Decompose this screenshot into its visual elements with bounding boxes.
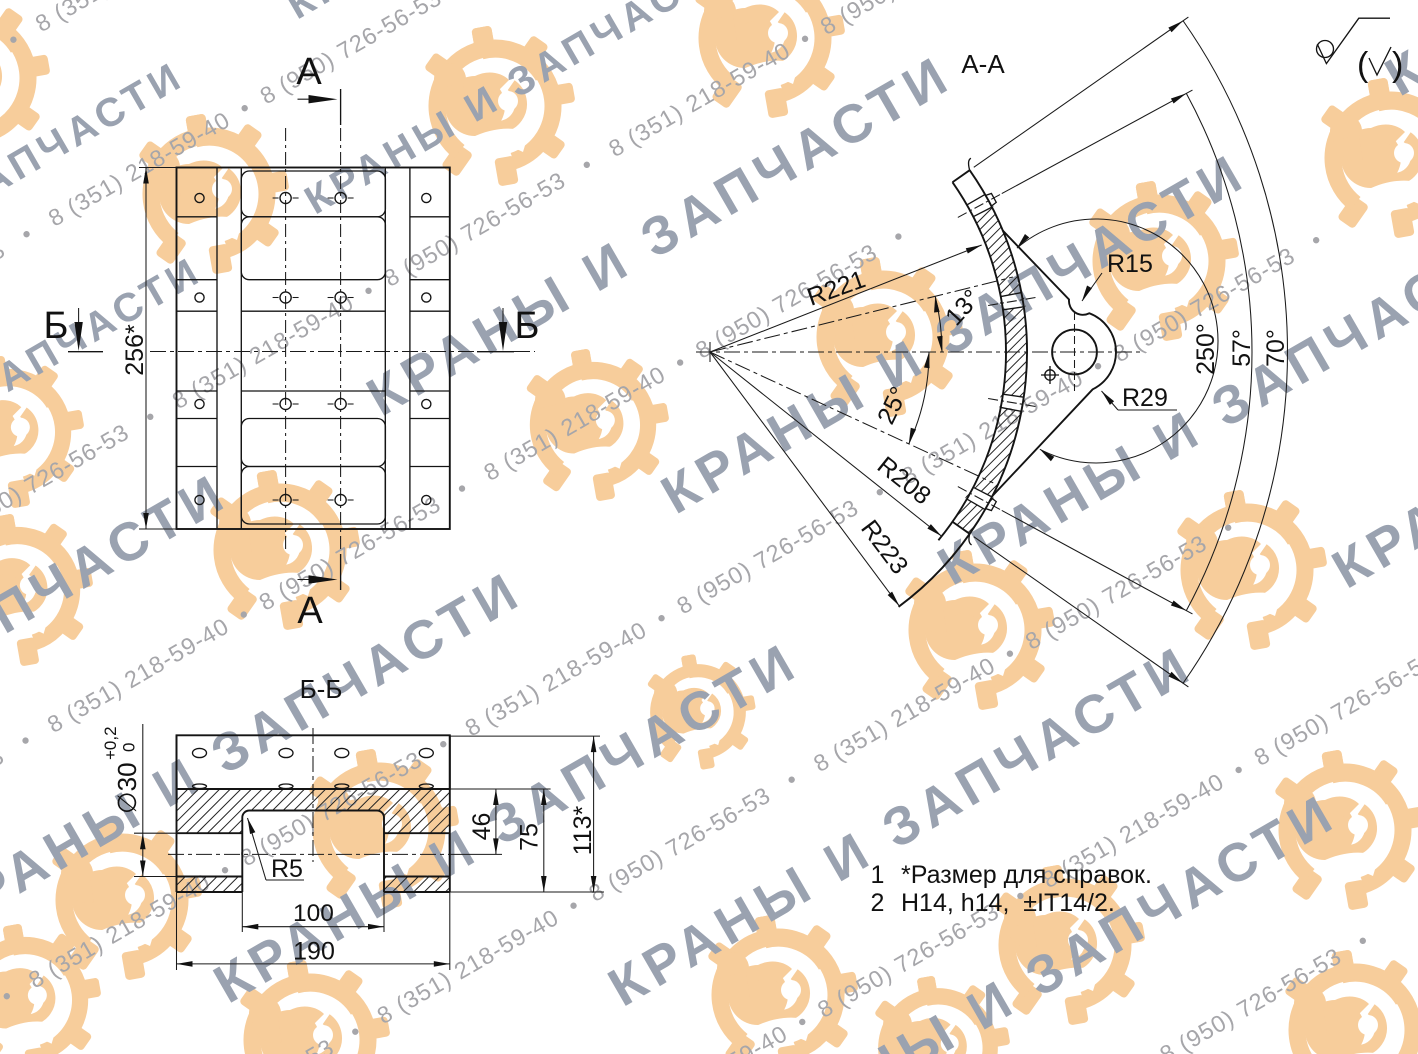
svg-text:250°: 250° bbox=[1192, 323, 1220, 375]
svg-text:А-А: А-А bbox=[961, 49, 1005, 79]
svg-text:R29: R29 bbox=[1122, 384, 1168, 412]
svg-text:(: ( bbox=[1357, 46, 1369, 84]
svg-text:190: 190 bbox=[293, 938, 335, 966]
svg-text:Б: Б bbox=[44, 305, 69, 347]
svg-text:Б-Б: Б-Б bbox=[300, 674, 343, 704]
svg-text:∅30: ∅30 bbox=[112, 762, 142, 814]
svg-text:46: 46 bbox=[468, 813, 496, 841]
svg-text:0: 0 bbox=[120, 743, 139, 752]
svg-text:2: 2 bbox=[871, 889, 885, 917]
svg-text:+0,2: +0,2 bbox=[101, 726, 120, 760]
svg-text:113*: 113* bbox=[569, 805, 597, 855]
svg-text:100: 100 bbox=[293, 900, 334, 927]
svg-text:70°: 70° bbox=[1262, 329, 1290, 367]
svg-text:1: 1 bbox=[871, 861, 885, 889]
svg-text:R5: R5 bbox=[271, 855, 303, 883]
svg-text:256*: 256* bbox=[121, 324, 149, 376]
svg-text:R15: R15 bbox=[1107, 250, 1153, 278]
svg-text:Б: Б bbox=[515, 305, 540, 347]
svg-text:75: 75 bbox=[516, 823, 544, 851]
svg-text:А: А bbox=[296, 51, 322, 93]
svg-text:*Размер для справок.: *Размер для справок. bbox=[901, 861, 1152, 889]
svg-text:А: А bbox=[297, 590, 323, 632]
svg-text:Н14, h14, ±IT14/2.: Н14, h14, ±IT14/2. bbox=[901, 889, 1115, 917]
svg-text:): ) bbox=[1392, 46, 1403, 84]
svg-text:57°: 57° bbox=[1228, 329, 1256, 367]
